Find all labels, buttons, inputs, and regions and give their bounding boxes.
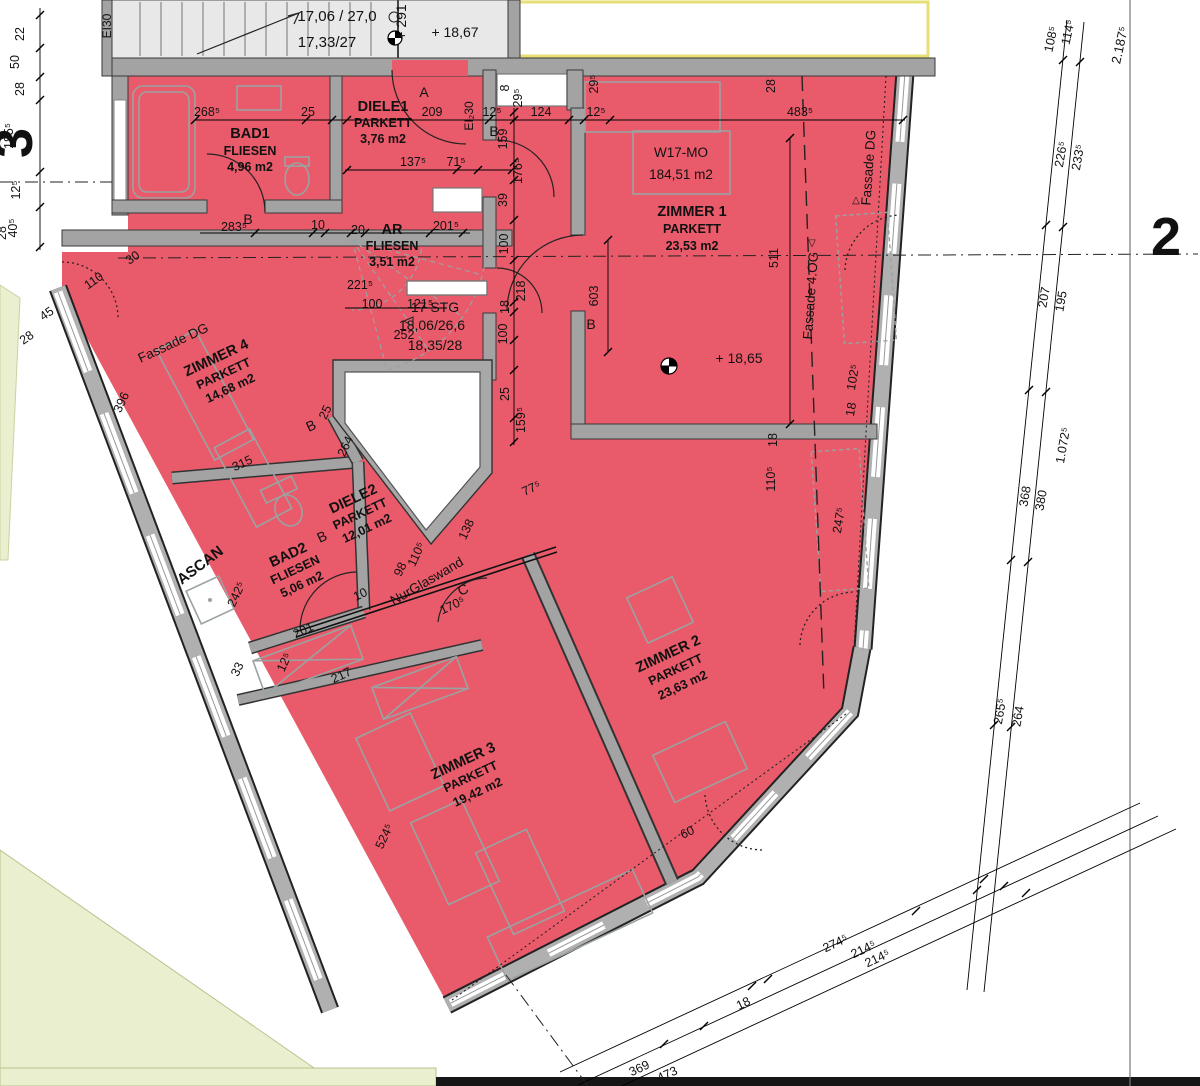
- svg-text:268⁵: 268⁵: [194, 105, 220, 119]
- triangle-marker: ▽: [808, 238, 816, 249]
- svg-text:12⁵: 12⁵: [586, 105, 605, 119]
- svg-text:114⁵: 114⁵: [1059, 18, 1078, 45]
- floor-plan-drawing: BAD1 FLIESEN 4,96 m2 DIELE1 PARKETT 3,76…: [0, 0, 1200, 1086]
- svg-text:207: 207: [1035, 286, 1052, 309]
- svg-text:108⁵: 108⁵: [1042, 25, 1061, 53]
- svg-text:+ 291: + 291: [393, 4, 409, 40]
- svg-text:218: 218: [514, 281, 528, 302]
- fire-rating-label: EI₂30: [462, 101, 476, 131]
- svg-text:PARKETT: PARKETT: [354, 116, 412, 130]
- level-upper: + 18,67: [431, 24, 478, 40]
- svg-text:29⁵: 29⁵: [511, 88, 525, 107]
- svg-text:18: 18: [766, 433, 780, 447]
- svg-text:B: B: [586, 316, 595, 332]
- svg-text:209: 209: [422, 105, 443, 119]
- apartment-area-value: 184,51 m2: [649, 167, 713, 182]
- svg-text:226⁵: 226⁵: [1052, 140, 1070, 168]
- svg-text:22: 22: [13, 27, 27, 41]
- wardrobe-niche: [433, 188, 482, 212]
- svg-text:603: 603: [587, 286, 601, 307]
- overall-dimension: 2.187⁵: [1108, 25, 1131, 65]
- svg-text:159: 159: [496, 129, 510, 150]
- svg-text:17,33/27: 17,33/27: [298, 34, 356, 51]
- svg-text:100: 100: [497, 234, 511, 255]
- svg-text:71⁵: 71⁵: [446, 155, 465, 169]
- fire-rating-label: EI30: [100, 13, 114, 38]
- svg-text:DIELE1: DIELE1: [358, 99, 409, 115]
- svg-text:45: 45: [37, 304, 56, 323]
- svg-text:23,53 m2: 23,53 m2: [666, 239, 719, 253]
- svg-text:50: 50: [8, 55, 22, 69]
- room-area: 4,96 m2: [227, 160, 273, 174]
- stair-landing: [407, 281, 487, 295]
- svg-text:159⁵: 159⁵: [514, 407, 528, 433]
- svg-text:233⁵: 233⁵: [1069, 143, 1087, 171]
- svg-text:201⁵: 201⁵: [433, 219, 459, 233]
- svg-text:264: 264: [1009, 705, 1026, 728]
- svg-text:185⁵: 185⁵: [2, 123, 16, 149]
- svg-text:274⁵: 274⁵: [821, 932, 851, 956]
- svg-text:20: 20: [351, 223, 365, 237]
- svg-text:100: 100: [496, 324, 510, 345]
- svg-text:28: 28: [13, 82, 27, 96]
- svg-text:18,35/28: 18,35/28: [408, 337, 463, 353]
- roof-opening: [518, 2, 928, 56]
- svg-text:195: 195: [1052, 290, 1069, 313]
- room-label-zimmer1: ZIMMER 1 PARKETT 23,53 m2: [657, 204, 726, 253]
- svg-text:PARKETT: PARKETT: [663, 222, 721, 236]
- svg-text:8: 8: [498, 84, 512, 91]
- door-letter-a: A: [419, 84, 429, 100]
- room-name: BAD1: [230, 126, 269, 142]
- svg-text:100: 100: [362, 297, 383, 311]
- svg-text:3,76 m2: 3,76 m2: [360, 132, 406, 146]
- svg-text:28: 28: [764, 79, 778, 93]
- svg-text:110⁵: 110⁵: [764, 466, 778, 491]
- level-zimmer1: + 18,65: [715, 350, 762, 366]
- svg-text:121⁵: 121⁵: [407, 297, 433, 311]
- svg-text:1.072⁵: 1.072⁵: [1053, 426, 1073, 464]
- room-material: FLIESEN: [224, 144, 277, 158]
- svg-text:380: 380: [1032, 489, 1049, 512]
- room-label-bad1: BAD1 FLIESEN 4,96 m2: [224, 126, 277, 174]
- apartment-id: W17-MO: [654, 145, 708, 160]
- svg-text:ZIMMER 1: ZIMMER 1: [657, 204, 726, 220]
- svg-text:25: 25: [301, 105, 315, 119]
- svg-text:17,06 / 27,0: 17,06 / 27,0: [297, 8, 376, 25]
- svg-text:511: 511: [767, 248, 781, 268]
- svg-text:25: 25: [498, 387, 512, 401]
- svg-text:FLIESEN: FLIESEN: [366, 239, 419, 253]
- svg-text:12⁵: 12⁵: [482, 105, 501, 119]
- svg-text:221⁵: 221⁵: [347, 278, 373, 292]
- svg-text:33: 33: [228, 660, 247, 679]
- svg-text:39: 39: [496, 193, 510, 207]
- svg-text:252: 252: [394, 328, 415, 342]
- svg-text:137⁵: 137⁵: [400, 155, 426, 169]
- svg-text:18: 18: [734, 994, 753, 1013]
- svg-text:483⁵: 483⁵: [787, 105, 813, 119]
- room-label-diele1: DIELE1 PARKETT 3,76 m2: [354, 99, 412, 146]
- level-symbol-zimmer1: [661, 358, 677, 374]
- svg-text:AR: AR: [382, 222, 403, 238]
- svg-text:28: 28: [17, 328, 36, 347]
- svg-text:28: 28: [0, 226, 9, 240]
- svg-text:124: 124: [531, 105, 552, 119]
- floor-plan-page: BAD1 FLIESEN 4,96 m2 DIELE1 PARKETT 3,76…: [0, 0, 1200, 1086]
- svg-text:176⁵: 176⁵: [511, 158, 525, 184]
- svg-text:3,51 m2: 3,51 m2: [369, 255, 415, 269]
- svg-text:12⁵: 12⁵: [9, 180, 23, 199]
- axis-2: 2: [1151, 207, 1181, 267]
- svg-text:10: 10: [311, 218, 325, 232]
- svg-text:18: 18: [843, 401, 859, 417]
- svg-text:29⁵: 29⁵: [587, 74, 601, 93]
- triangle-marker: △: [852, 195, 860, 206]
- svg-text:265⁵: 265⁵: [991, 697, 1009, 725]
- svg-text:368: 368: [1016, 485, 1033, 508]
- svg-text:18: 18: [498, 300, 512, 314]
- svg-text:283⁵: 283⁵: [221, 220, 247, 234]
